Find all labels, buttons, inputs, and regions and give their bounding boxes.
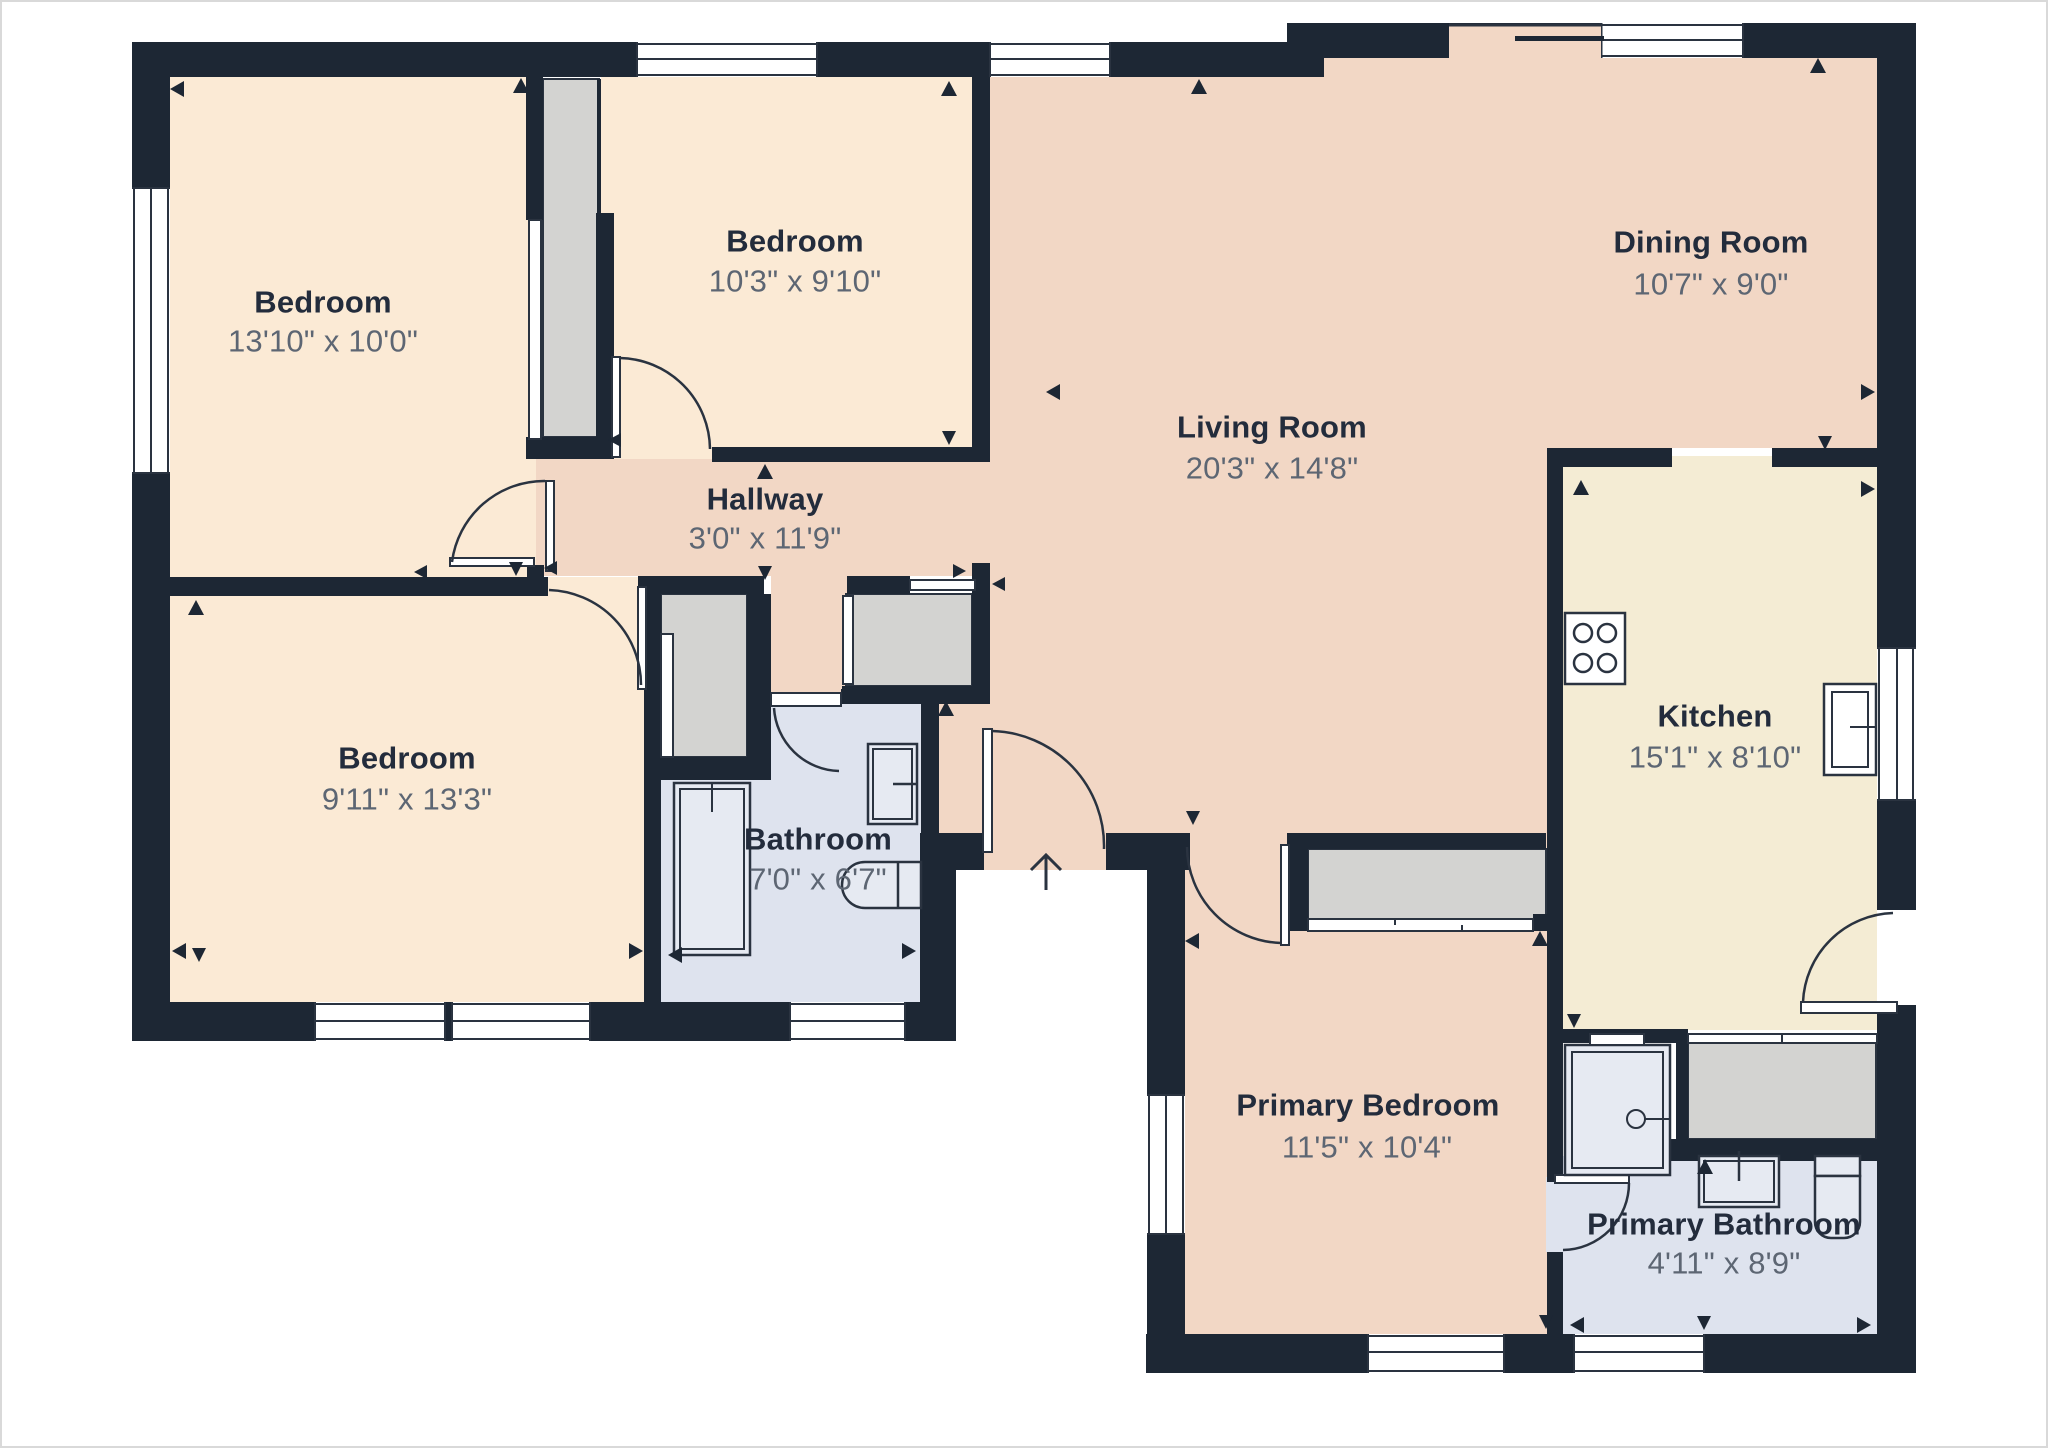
- svg-text:Primary Bathroom: Primary Bathroom: [1587, 1207, 1861, 1242]
- svg-text:9'11" x 13'3": 9'11" x 13'3": [322, 782, 492, 817]
- svg-text:Kitchen: Kitchen: [1657, 699, 1772, 734]
- svg-text:10'7" x 9'0": 10'7" x 9'0": [1633, 267, 1788, 302]
- svg-text:4'11" x 8'9": 4'11" x 8'9": [1648, 1246, 1801, 1281]
- svg-text:Bedroom: Bedroom: [254, 285, 391, 320]
- svg-text:Dining Room: Dining Room: [1613, 225, 1808, 260]
- svg-text:Bedroom: Bedroom: [338, 741, 475, 776]
- svg-text:Primary Bedroom: Primary Bedroom: [1236, 1088, 1499, 1123]
- svg-text:20'3" x 14'8": 20'3" x 14'8": [1186, 451, 1359, 486]
- svg-text:Hallway: Hallway: [707, 482, 824, 517]
- svg-text:15'1" x 8'10": 15'1" x 8'10": [1629, 740, 1802, 775]
- svg-text:13'10" x 10'0": 13'10" x 10'0": [228, 324, 418, 359]
- svg-text:Bedroom: Bedroom: [726, 224, 863, 259]
- svg-text:11'5" x 10'4": 11'5" x 10'4": [1282, 1130, 1452, 1165]
- svg-text:Bathroom: Bathroom: [744, 822, 892, 857]
- svg-text:10'3" x 9'10": 10'3" x 9'10": [709, 264, 882, 299]
- svg-text:3'0" x 11'9": 3'0" x 11'9": [689, 521, 842, 556]
- svg-text:7'0" x 6'7": 7'0" x 6'7": [749, 862, 887, 897]
- svg-text:Living Room: Living Room: [1177, 410, 1367, 445]
